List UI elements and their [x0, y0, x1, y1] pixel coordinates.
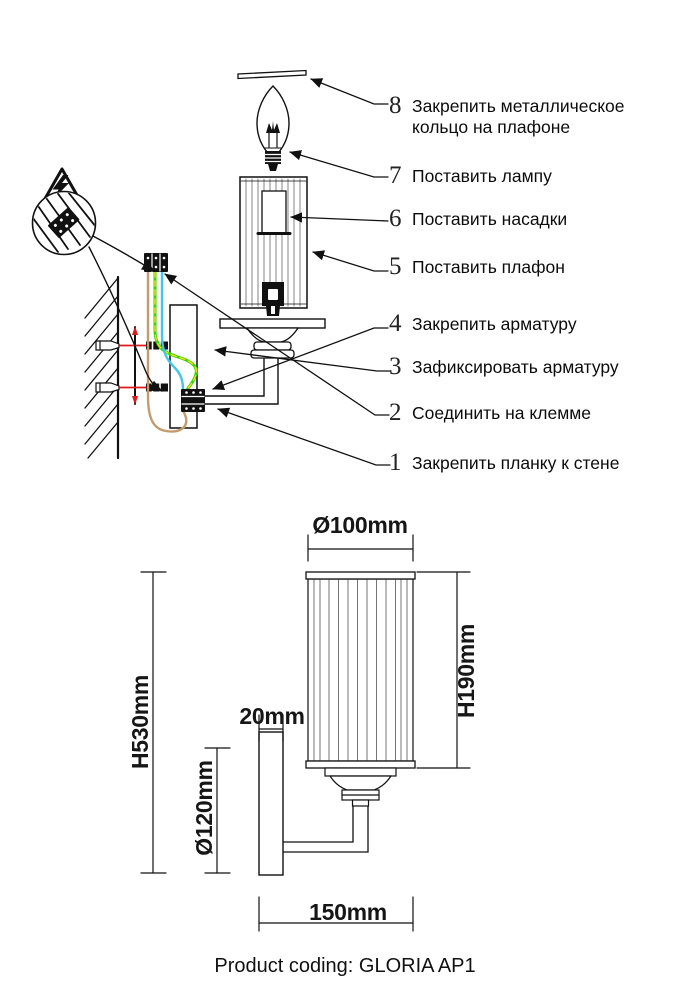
- wall: [85, 277, 118, 458]
- assembly-diagram: [33, 71, 392, 466]
- dim-label-backplate-height: Ø120mm: [190, 748, 218, 868]
- assembly-step: 1 Закрепить планку к стене: [389, 450, 685, 475]
- step-number: 6: [389, 206, 403, 231]
- assembly-step: 3 Зафиксировать арматуру: [389, 354, 685, 379]
- step-number: 3: [389, 354, 403, 379]
- step-label: Зафиксировать арматуру: [412, 354, 619, 378]
- leader-1: [218, 409, 390, 465]
- terminal-block-top: [144, 253, 168, 272]
- magnifier-circle: [33, 191, 163, 391]
- step-label: Закрепить планку к стене: [412, 450, 619, 474]
- leader-8: [311, 79, 388, 104]
- dim-arm: [283, 806, 368, 852]
- step-label: Закрепить арматуру: [412, 311, 577, 335]
- dim-label-shade-diameter: Ø100mm: [300, 511, 420, 539]
- assembly-step: 2 Соединить на клемме: [389, 400, 685, 425]
- dim-shade: [306, 572, 415, 768]
- leader-4: [213, 328, 388, 389]
- bulb: [257, 86, 289, 171]
- screw-bracket: [132, 326, 138, 405]
- sleeve-nozzle: [258, 191, 290, 234]
- step-number: 4: [389, 311, 403, 336]
- dim-label-shade-height: H190mm: [452, 611, 480, 731]
- leader-3: [215, 350, 391, 371]
- step-label: Поставить плафон: [412, 254, 565, 278]
- diagram-graphics: [0, 0, 690, 1000]
- assembly-step: 4 Закрепить арматуру: [389, 311, 685, 336]
- lamp-socket: [262, 282, 284, 316]
- step-label: Поставить насадки: [412, 206, 567, 230]
- assembly-step: 7 Поставить лампу: [389, 163, 685, 188]
- instruction-sheet: 8 Закрепить металлическое кольцо на плаф…: [0, 0, 690, 1000]
- leader-5: [313, 252, 388, 271]
- metal-ring: [238, 71, 306, 79]
- canopy-plate: [220, 319, 325, 328]
- step-number: 5: [389, 254, 403, 279]
- dim-label-backplate-width: 20mm: [212, 702, 332, 730]
- dim-backplate: [259, 732, 283, 875]
- dim-label-overall-height: H530mm: [126, 662, 154, 782]
- trumpet-holder: [247, 328, 298, 358]
- step-label: Соединить на клемме: [412, 400, 591, 424]
- armature-arm: [198, 358, 278, 404]
- dimension-lines: [141, 535, 470, 931]
- assembly-step: 5 Поставить плафон: [389, 254, 685, 279]
- wall-screws: [96, 341, 168, 392]
- dim-label-arm-projection: 150mm: [288, 898, 408, 926]
- step-number: 2: [389, 400, 403, 425]
- terminal-block-bottom: [181, 389, 205, 412]
- step-number: 1: [389, 450, 403, 475]
- step-number: 7: [389, 163, 403, 188]
- assembly-step: 6 Поставить насадки: [389, 206, 685, 231]
- assembly-step: 8 Закрепить металлическое кольцо на плаф…: [389, 93, 685, 138]
- product-coding: Product coding: GLORIA AP1: [145, 955, 545, 978]
- step-label: Закрепить металлическое кольцо на плафон…: [412, 93, 685, 138]
- dimension-drawing: [141, 535, 470, 931]
- dim-trumpet: [325, 768, 396, 806]
- step-label: Поставить лампу: [412, 163, 552, 187]
- step-number: 8: [389, 93, 403, 118]
- leader-7: [290, 152, 388, 177]
